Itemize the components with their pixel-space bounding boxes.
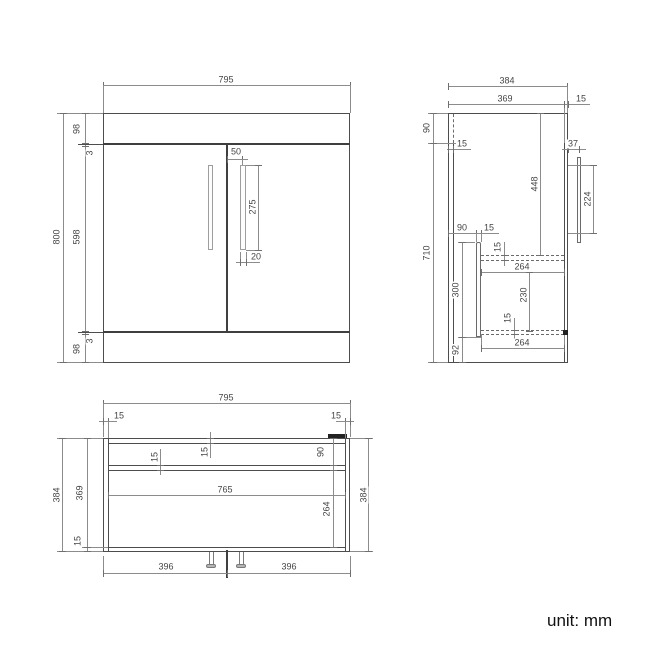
dim-tick: [84, 547, 91, 548]
dim-label-body-depth: 369: [496, 95, 513, 104]
dim-tick: [501, 260, 508, 261]
dim-tick: [60, 362, 67, 363]
dim-tick: [526, 331, 533, 332]
dim-tick: [453, 146, 454, 153]
dim-label-plinth-height: 92: [452, 344, 461, 356]
back-panel-inner-line: [108, 443, 345, 444]
unit-label: unit: mm: [547, 611, 612, 631]
drawer-bottom-hidden-line: [481, 334, 564, 335]
dim-tick: [511, 330, 518, 331]
ext-line: [78, 144, 103, 145]
back-panel-hidden-line: [453, 114, 454, 143]
ext-line: [103, 85, 104, 113]
dim-tick: [448, 230, 449, 237]
dim-label-door-height: 598: [73, 228, 82, 245]
back-panel-line: [453, 143, 454, 363]
dim-label-top-section: 90: [423, 122, 432, 134]
dim-tick: [430, 113, 437, 114]
dim-tick: [103, 570, 104, 577]
dim-tick: [246, 259, 247, 266]
dim-label-handle-offset: 50: [230, 148, 242, 157]
dim-line: [481, 348, 564, 349]
dim-tick: [481, 269, 482, 276]
cabinet-outline-side: [448, 113, 568, 363]
dim-label-handle-standoff: 37: [567, 140, 579, 149]
dim-label-drawer-back-thickness: 15: [483, 224, 495, 233]
dim-line: [462, 242, 463, 363]
dim-label-top-to-drawer: 448: [531, 175, 540, 192]
dim-label-inner-width: 765: [216, 486, 233, 495]
dim-tick: [365, 438, 372, 439]
dim-label-plan-front-thickness: 15: [74, 535, 83, 547]
dim-tick: [430, 143, 437, 144]
dim-tick: [568, 101, 569, 108]
side-handle-profile: [577, 157, 581, 243]
dim-label-plan-width: 795: [217, 394, 234, 403]
dim-label-drawer-bottom-depth: 264: [513, 339, 530, 348]
dim-label-front-thickness: 15: [575, 95, 587, 104]
dim-tick: [579, 146, 580, 153]
ext-line: [476, 233, 477, 242]
right-door-handle: [240, 165, 246, 250]
dim-label-top-panel: 98: [73, 123, 82, 135]
dim-line: [593, 165, 594, 233]
dim-tick: [459, 362, 466, 363]
dim-tick: [255, 165, 262, 166]
handle-bar-plan: [236, 564, 246, 568]
ext-line: [78, 332, 103, 333]
dim-line: [333, 438, 334, 548]
dim-tick: [157, 465, 164, 466]
dim-tick: [82, 146, 89, 147]
handle-bar-plan: [206, 564, 216, 568]
dim-tick: [459, 337, 466, 338]
dim-line: [540, 113, 541, 255]
dim-tick: [82, 362, 89, 363]
dim-tick: [511, 334, 518, 335]
drawer-top-hidden-line: [481, 255, 564, 256]
dim-line: [103, 85, 350, 86]
dim-label-back-thickness: 15: [456, 140, 468, 149]
dim-label-drawer-top-thickness: 15: [494, 241, 503, 253]
dim-line: [447, 149, 471, 150]
dim-tick: [590, 233, 597, 234]
dim-tick: [564, 101, 565, 108]
dim-line: [62, 438, 63, 552]
door-bottom-line: [103, 331, 350, 333]
dim-label-front-total-height: 800: [53, 228, 62, 245]
dim-line: [87, 438, 88, 552]
dim-label-right-door-width: 396: [280, 563, 297, 572]
dim-line: [258, 165, 259, 250]
dim-tick: [60, 113, 67, 114]
dim-tick: [84, 438, 91, 439]
dim-label-drawer-inner-height: 230: [520, 286, 529, 303]
dim-tick: [537, 113, 544, 114]
ext-line: [350, 85, 351, 113]
dim-label-drawer-top-depth: 264: [513, 263, 530, 272]
dim-label-plan-drawer-depth: 264: [323, 500, 332, 517]
dim-line: [481, 272, 564, 273]
dim-label-plan-inner-depth: 369: [76, 484, 85, 501]
dim-line: [448, 86, 568, 87]
dim-line: [63, 113, 64, 363]
left-door-handle: [208, 165, 213, 250]
dim-label-drawer-bottom-thickness: 15: [504, 312, 513, 324]
dim-tick: [108, 492, 109, 499]
dim-tick: [240, 259, 241, 266]
dim-tick: [207, 438, 214, 439]
dim-tick: [345, 492, 346, 499]
dim-tick: [227, 570, 228, 577]
dim-label-side-handle-length: 224: [584, 190, 593, 207]
dim-label-top-gap: 3: [86, 149, 95, 156]
dim-line: [504, 242, 505, 266]
dim-label-bottom-gap: 3: [86, 337, 95, 344]
dim-label-left-panel: 15: [113, 412, 125, 421]
dim-tick: [330, 465, 337, 466]
dim-tick: [448, 101, 449, 108]
drawer-back-panel: [476, 242, 481, 337]
dim-tick: [157, 470, 164, 471]
dim-line: [433, 113, 434, 363]
dim-tick: [448, 146, 449, 153]
dim-tick: [59, 438, 66, 439]
dim-label-rail-offset: 90: [317, 446, 326, 458]
dim-label-plan-depth-right: 384: [360, 486, 369, 503]
dim-line: [448, 233, 499, 234]
dim-line: [562, 149, 586, 150]
dim-line: [227, 159, 248, 160]
dim-tick: [350, 570, 351, 577]
ext-line: [108, 421, 109, 438]
dim-tick: [82, 113, 89, 114]
drawer-bottom-hidden-line: [481, 330, 564, 331]
technical-drawing-canvas: 795 800 98 3 598 3 98 50 275: [0, 0, 650, 650]
dim-tick: [501, 255, 508, 256]
dim-label-drawer-section-height: 300: [452, 281, 461, 298]
dim-tick: [82, 334, 89, 335]
dim-tick: [207, 443, 214, 444]
dim-tick: [430, 362, 437, 363]
ext-line: [345, 421, 346, 438]
dim-line: [160, 449, 161, 475]
dim-tick: [227, 156, 228, 163]
dim-tick: [590, 165, 597, 166]
dim-line: [210, 432, 211, 458]
dim-line: [529, 272, 530, 331]
dim-tick: [365, 551, 372, 552]
dim-tick: [459, 242, 466, 243]
front-panel-inner-line: [108, 547, 345, 548]
dim-label-plan-depth-left: 384: [53, 486, 62, 503]
dim-tick: [448, 83, 449, 90]
dim-label-front-width: 795: [217, 76, 234, 85]
dim-line: [108, 495, 345, 496]
dim-tick: [330, 438, 337, 439]
ext-line: [242, 159, 243, 165]
dim-tick: [330, 470, 337, 471]
dim-tick: [481, 345, 482, 352]
dim-label-handle-width: 20: [250, 253, 262, 262]
ext-line: [567, 86, 568, 113]
ext-line: [481, 233, 482, 242]
dim-tick: [59, 551, 66, 552]
dim-label-back-panel-thickness: 15: [201, 446, 210, 458]
rail-line: [108, 465, 345, 466]
dim-label-side-depth: 384: [498, 77, 515, 86]
rail-line: [108, 470, 345, 471]
dim-label-rail-thickness: 15: [151, 451, 160, 463]
dim-label-drawer-back-offset: 90: [456, 224, 468, 233]
dim-tick: [330, 547, 337, 548]
dim-label-left-door-width: 396: [157, 563, 174, 572]
dim-label-body-height: 710: [423, 244, 432, 261]
dim-tick: [537, 255, 544, 256]
dim-tick: [526, 272, 533, 273]
ext-line: [564, 104, 565, 143]
dim-tick: [564, 345, 565, 352]
dim-tick: [564, 269, 565, 276]
dim-tick: [350, 418, 351, 425]
dim-line: [103, 403, 350, 404]
dim-tick: [84, 551, 91, 552]
dim-label-right-panel: 15: [330, 412, 342, 421]
dim-label-handle-length: 275: [249, 198, 258, 215]
dim-tick: [103, 418, 104, 425]
door-divider-line: [226, 145, 228, 331]
dim-label-bottom-panel: 98: [73, 343, 82, 355]
